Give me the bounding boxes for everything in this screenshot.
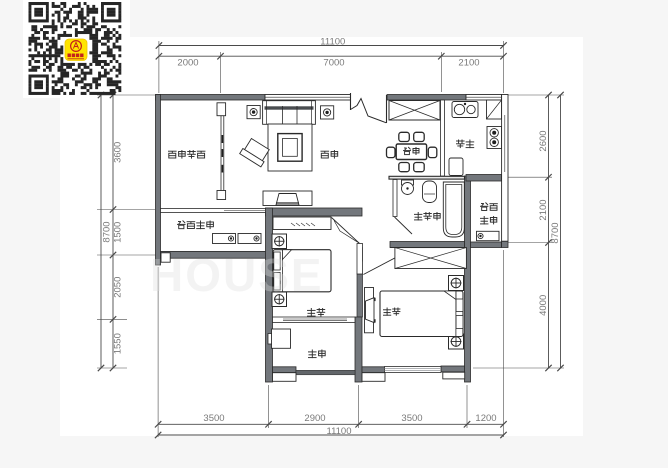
svg-text:2900: 2900 [304,413,325,424]
svg-text:2600: 2600 [538,130,549,151]
svg-text:11100: 11100 [320,36,345,47]
svg-text:HOUSE: HOUSE [150,249,324,301]
svg-text:7000: 7000 [323,58,344,69]
svg-text:2100: 2100 [538,199,549,220]
svg-text:3500: 3500 [203,413,224,424]
svg-text:8700: 8700 [550,222,561,243]
svg-text:4000: 4000 [538,295,549,316]
svg-text:1200: 1200 [475,413,496,424]
svg-text:2000: 2000 [177,58,198,69]
svg-text:2050: 2050 [112,277,123,298]
svg-text:1500: 1500 [112,222,123,243]
svg-text:8700: 8700 [101,221,112,242]
svg-text:3600: 3600 [112,142,123,163]
svg-text:2100: 2100 [458,58,479,69]
svg-text:11100: 11100 [326,426,351,437]
svg-text:3500: 3500 [401,413,422,424]
svg-text:1550: 1550 [112,333,123,354]
